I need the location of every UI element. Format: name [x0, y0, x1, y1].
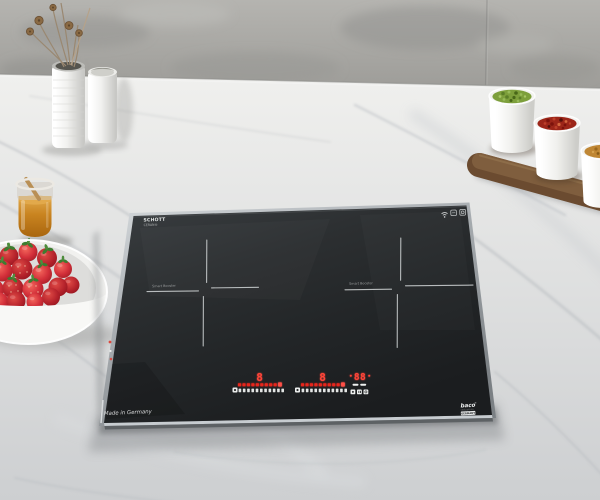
timer-plus-icon — [360, 384, 366, 386]
short-vase — [88, 67, 117, 143]
zone2-power-button — [295, 388, 300, 393]
cert-badge-icon-2 — [460, 209, 466, 215]
power-icon — [234, 389, 236, 391]
zone1-power-display: 8 — [256, 371, 263, 384]
herb-cup — [489, 88, 535, 153]
glass-brand-line2: CERAN® — [144, 223, 158, 227]
function-buttons — [351, 390, 369, 395]
tall-vase — [52, 61, 85, 149]
turmeric-cup — [581, 143, 600, 208]
cert-badge-icon — [451, 210, 457, 216]
chili-cup — [534, 115, 580, 180]
zone-right-label: Smart Booster — [349, 281, 373, 286]
zone1-slider-ticks — [239, 389, 284, 393]
zone2-slider-ticks — [302, 389, 347, 393]
lock-icon — [352, 391, 354, 393]
timer-minus-icon — [353, 384, 359, 386]
timer-dot-left — [350, 375, 352, 377]
timer-dot-right — [368, 375, 370, 377]
product-photo: Smart Booster Smart Booster SCHOTT CERAN… — [0, 0, 600, 500]
timer-display: 88 — [354, 372, 366, 383]
power-icon — [296, 389, 298, 391]
zone2-power-display: 8 — [319, 371, 326, 384]
induction-hob: Smart Booster Smart Booster SCHOTT CERAN… — [88, 203, 505, 453]
brand-logo: baco ® induction GERMANY — [460, 402, 478, 416]
scene: Smart Booster Smart Booster SCHOTT CERAN… — [0, 0, 600, 500]
zone-left-label: Smart Booster — [152, 284, 176, 289]
zone1-power-button — [233, 388, 238, 393]
brand-badge-text: GERMANY — [461, 411, 475, 416]
